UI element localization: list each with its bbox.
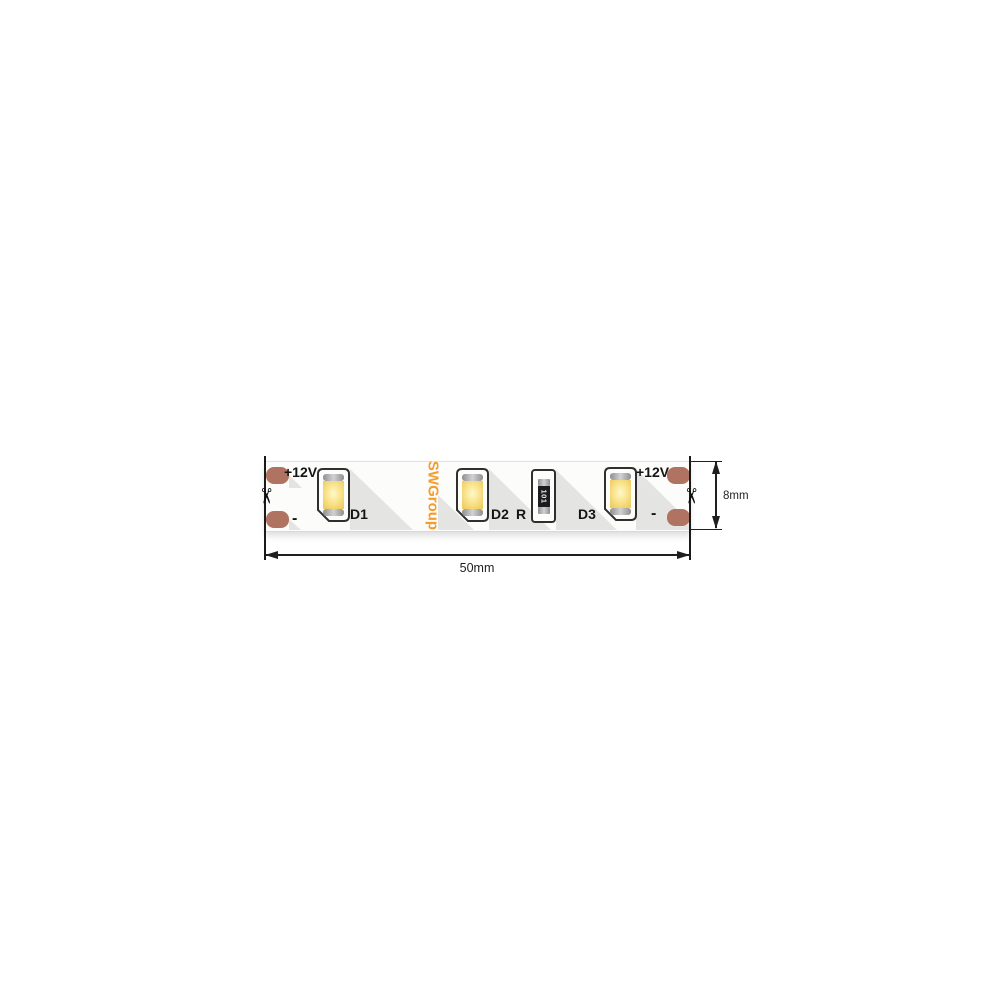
- led-d1: [317, 468, 350, 522]
- resistor-label: R: [516, 507, 526, 521]
- resistor-package: 101: [531, 469, 556, 523]
- led-d3-label: D3: [578, 507, 596, 521]
- dimension-line-length: [266, 554, 689, 556]
- resistor-body: 101: [538, 486, 550, 507]
- solder-pad-left-negative: [266, 511, 289, 528]
- dimension-arrowhead-width-top: [712, 461, 720, 474]
- dimension-label-width: 8mm: [723, 490, 749, 502]
- led-d2-label: D2: [491, 507, 509, 521]
- dimension-arrowhead-length-left: [265, 551, 278, 559]
- brand-text: SWGroup: [425, 460, 442, 532]
- terminal-label-left-positive: +12V: [284, 465, 317, 479]
- terminal-label-right-positive: +12V: [636, 465, 669, 479]
- scissors-icon-left: ✂: [252, 483, 278, 509]
- resistor-cap-bottom: [538, 507, 550, 514]
- led-d2: [456, 468, 489, 522]
- led-strip-dimension-diagram: ✂ ✂ +12V - +12V - 101 D1 D2 R D3 S: [0, 0, 1000, 1000]
- dimension-arrowhead-width-bottom: [712, 516, 720, 529]
- resistor-code: 101: [539, 489, 548, 503]
- dimension-label-length: 50mm: [447, 561, 507, 575]
- terminal-label-left-negative: -: [292, 512, 297, 526]
- terminal-label-right-negative: -: [651, 507, 656, 521]
- led-d1-label: D1: [350, 507, 368, 521]
- scissors-icon-right: ✂: [677, 483, 703, 509]
- solder-pad-right-negative: [667, 509, 690, 526]
- solder-pad-right-positive: [667, 467, 690, 484]
- resistor-cap-top: [538, 479, 550, 486]
- led-d3: [604, 467, 637, 521]
- dimension-arrowhead-length-right: [677, 551, 690, 559]
